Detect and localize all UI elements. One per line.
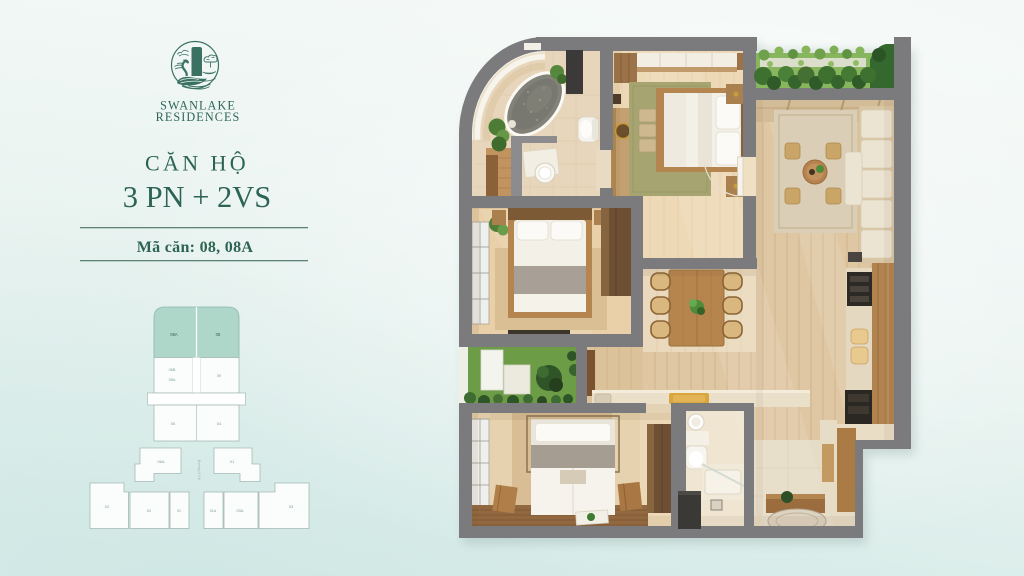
svg-text:01: 01 [177, 509, 181, 513]
svg-text:03: 03 [289, 504, 294, 509]
svg-text:RESIDENCES: RESIDENCES [156, 110, 241, 124]
svg-text:03A: 03A [236, 508, 243, 513]
svg-text:01A: 01A [210, 509, 217, 513]
svg-text:05: 05 [171, 421, 176, 426]
svg-text:01: 01 [230, 459, 235, 464]
svg-text:02: 02 [105, 504, 110, 509]
svg-text:3 PN + 2VS: 3 PN + 2VS [123, 180, 272, 214]
svg-text:08: 08 [216, 332, 221, 337]
svg-text:09: 09 [217, 374, 221, 378]
svg-text:Mã căn: 08, 08A: Mã căn: 08, 08A [137, 239, 254, 256]
svg-text:06A: 06A [157, 459, 164, 464]
svg-text:06B: 06B [169, 368, 176, 372]
svg-text:06A: 06A [169, 378, 176, 382]
svg-text:04: 04 [217, 421, 222, 426]
svg-text:08A: 08A [170, 332, 178, 337]
svg-text:Đường N.V.H: Đường N.V.H [197, 460, 201, 481]
svg-text:CĂN HỘ: CĂN HỘ [145, 151, 249, 176]
svg-text:02: 02 [147, 508, 152, 513]
